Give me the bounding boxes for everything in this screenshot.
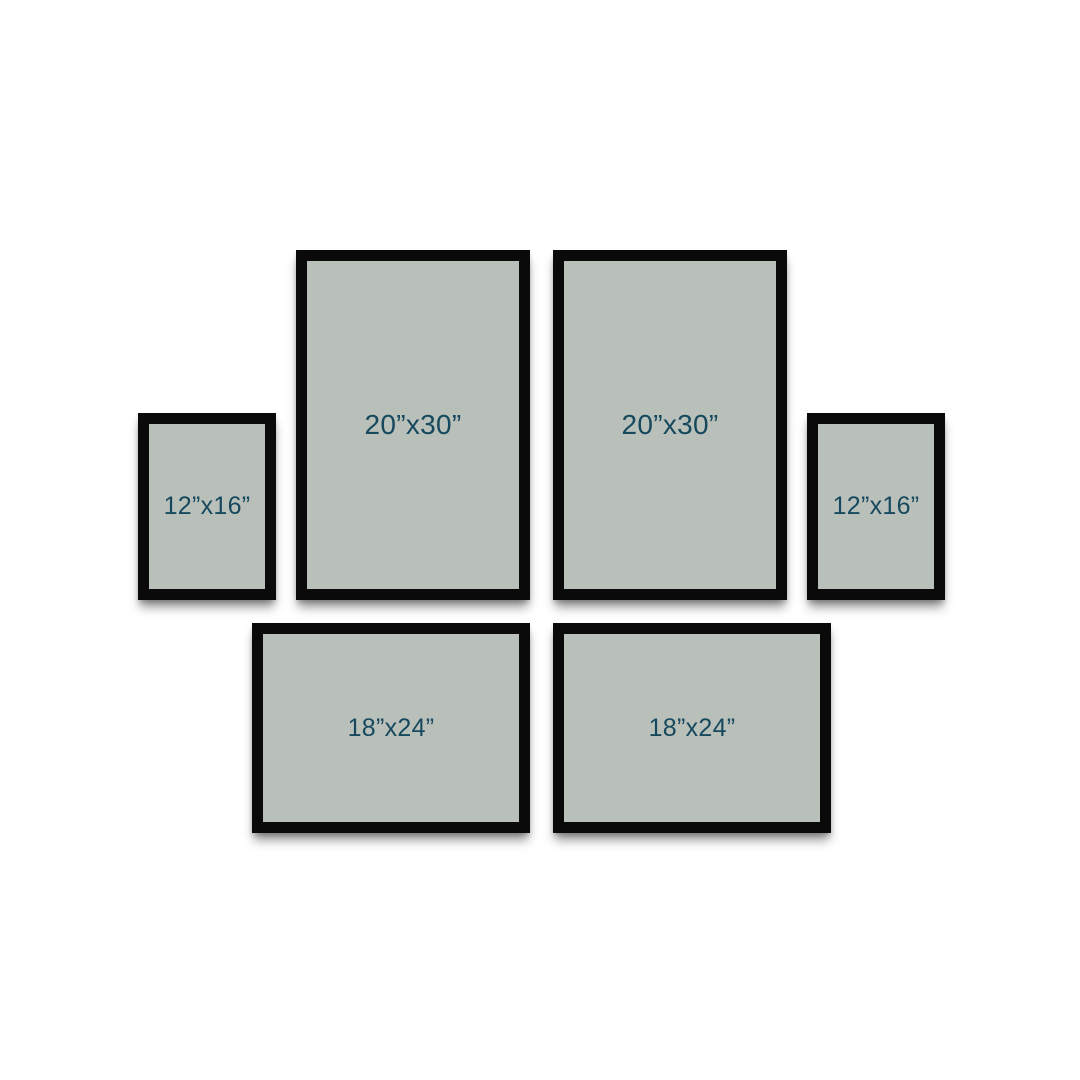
frame-size-label: 18”x24” xyxy=(348,716,435,741)
frame-18x24-left: 18”x24” xyxy=(252,623,530,833)
frame-size-label: 20”x30” xyxy=(621,411,718,439)
gallery-wall-canvas: 12”x16” 20”x30” 20”x30” 12”x16” 18”x24” … xyxy=(0,0,1080,1080)
frame-12x16-right: 12”x16” xyxy=(807,413,945,600)
frame-18x24-right: 18”x24” xyxy=(553,623,831,833)
frame-size-label: 20”x30” xyxy=(364,411,461,439)
frame-20x30-right: 20”x30” xyxy=(553,250,787,600)
frame-12x16-left: 12”x16” xyxy=(138,413,276,600)
frame-size-label: 12”x16” xyxy=(833,494,920,519)
frame-size-label: 18”x24” xyxy=(649,716,736,741)
frame-20x30-left: 20”x30” xyxy=(296,250,530,600)
frame-size-label: 12”x16” xyxy=(164,494,251,519)
